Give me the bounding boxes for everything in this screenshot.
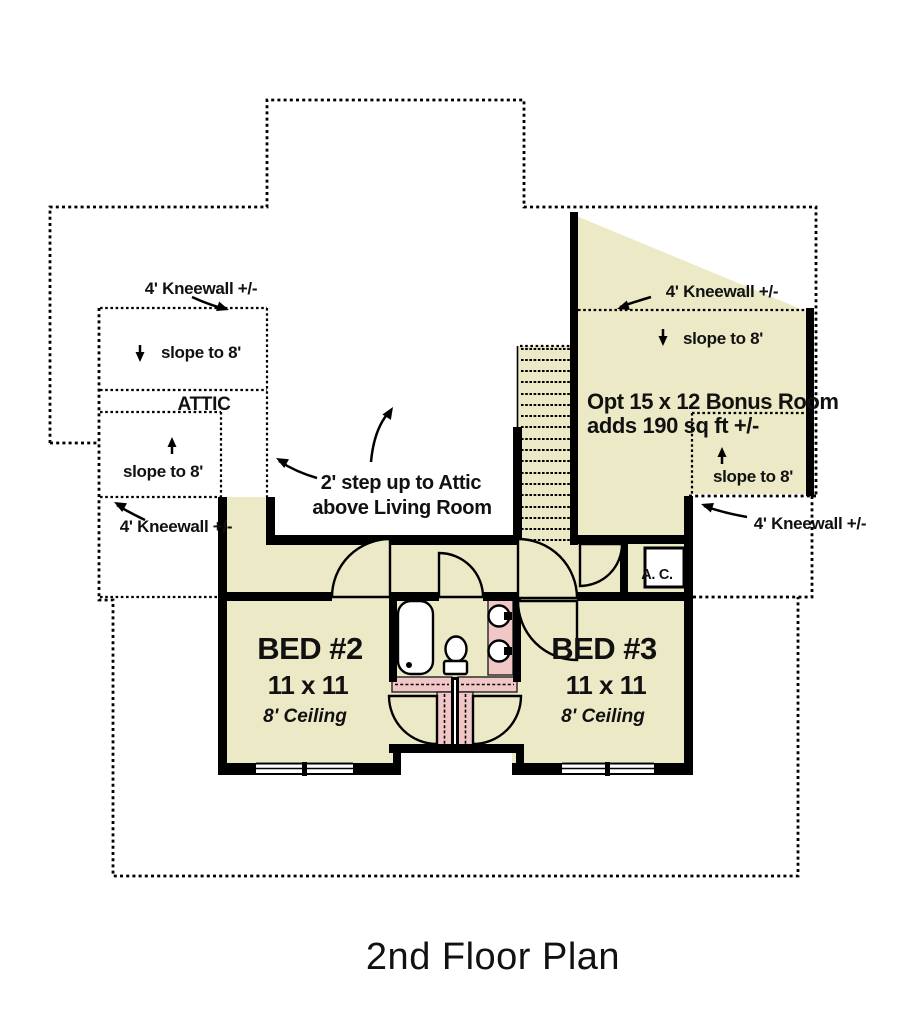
label-kneewall-bonus-top: 4' Kneewall +/- [666, 282, 778, 301]
arrowhead-icon [168, 437, 177, 447]
toilet-tank-icon [444, 661, 467, 674]
label-bed2-ceiling: 8' Ceiling [263, 706, 347, 727]
windows [256, 762, 654, 776]
wall-ac-north [574, 535, 689, 544]
wall-bedrow-north-d [577, 592, 689, 601]
roofline-bonus-notch [688, 496, 812, 597]
tub-drain-icon [406, 662, 412, 668]
label-attic: ATTIC [177, 394, 231, 415]
page-title: 2nd Floor Plan [366, 936, 620, 978]
label-bed3-size: 11 x 11 [566, 670, 646, 700]
wall-bedrow-north-c [483, 592, 518, 601]
wall-hall-north [266, 535, 520, 545]
label-bed3-name: BED #3 [551, 631, 657, 666]
label-stepup-line1: 2' step up to Attic [321, 472, 482, 494]
wall-center-south [389, 744, 524, 753]
window-bed3 [562, 762, 654, 776]
wall-attic-west [266, 497, 275, 545]
faucet-icon-1 [504, 612, 512, 620]
label-kneewall-topleft: 4' Kneewall +/- [145, 279, 257, 298]
label-bed2-name: BED #2 [257, 631, 363, 666]
wall-stair-bonus-divider [570, 212, 578, 545]
faucet-icon-2 [504, 647, 512, 655]
arrowhead-icon [216, 302, 231, 315]
label-slope-box1: slope to 8' [161, 343, 241, 362]
arrowhead-icon [136, 352, 145, 362]
bonus-room-area [574, 215, 808, 537]
wall-bedrow-north-a [218, 592, 332, 601]
floor-plan-drawing: 4' Kneewall +/- slope to 8' ATTIC slope … [0, 0, 923, 1024]
wall-stair-west [513, 427, 522, 545]
toilet-bowl-icon [446, 637, 467, 662]
floor-plan-page: 4' Kneewall +/- slope to 8' ATTIC slope … [0, 0, 923, 1024]
label-kneewall-bottomleft: 4' Kneewall +/- [120, 517, 232, 536]
label-stepup-line2: above Living Room [312, 497, 491, 519]
arrow-stepup-up [371, 411, 390, 462]
wall-stub-left [393, 744, 401, 775]
label-kneewall-bonus-bottom: 4' Kneewall +/- [754, 514, 866, 533]
label-bed3-ceiling: 8' Ceiling [561, 706, 645, 727]
wall-bath-west [389, 592, 397, 682]
label-ac: A. C. [641, 567, 673, 583]
label-bonus-line2: adds 190 sq ft +/- [587, 413, 759, 438]
stairwell-area [517, 346, 570, 545]
label-slope-bonus-bottom: slope to 8' [713, 467, 793, 486]
bathtub-icon [398, 601, 433, 674]
wall-west [218, 497, 227, 775]
arrowhead-icon [699, 499, 714, 512]
label-bed2-size: 11 x 11 [268, 670, 348, 700]
label-slope-box2: slope to 8' [123, 462, 203, 481]
label-slope-bonus-top: slope to 8' [683, 329, 763, 348]
window-bed2 [256, 762, 353, 776]
label-bonus-line1: Opt 15 x 12 Bonus Room [587, 389, 839, 414]
